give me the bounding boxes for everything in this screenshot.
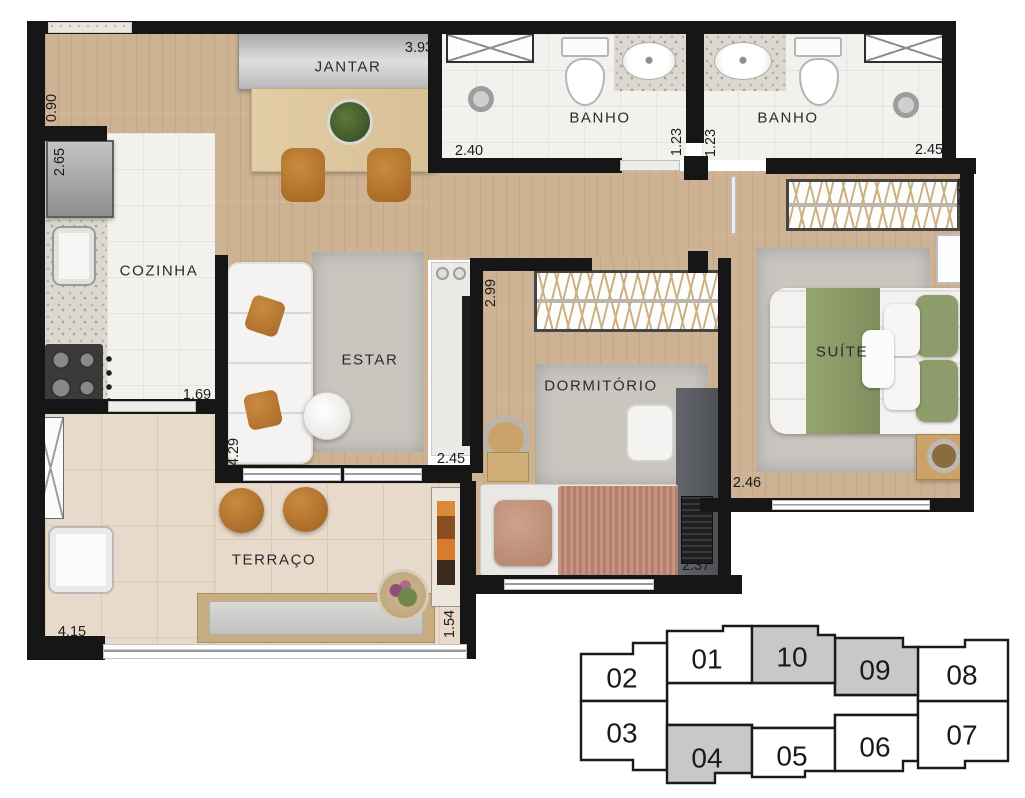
wall [470, 258, 592, 271]
coffee-table [303, 392, 351, 440]
dim-banho1-depth: 1.23 [669, 128, 685, 156]
wall [960, 158, 974, 512]
toilet-1-tank [561, 37, 609, 57]
shower-box-1 [446, 33, 534, 63]
stove-knobs [104, 352, 114, 404]
dorm-window [504, 579, 654, 590]
washing-machine [48, 526, 114, 594]
dim-terraco-width: 4.15 [58, 624, 86, 640]
wall [27, 21, 956, 34]
terrace-glass-railing [103, 644, 467, 659]
keyplan: 01020304050607080910 [573, 623, 1025, 795]
room-label-banho-1: BANHO [569, 110, 630, 127]
dim-banho2-depth: 1.23 [703, 129, 719, 157]
dim-entry-width: 0.90 [44, 94, 60, 122]
tv-screen [462, 296, 470, 446]
pouf-1 [219, 488, 264, 533]
estar-sliding-door-1 [243, 468, 341, 481]
nightstand-tray [927, 439, 961, 473]
basin-1 [622, 42, 676, 80]
room-label-dormitorio: DORMITÓRIO [544, 378, 658, 395]
room-label-banho-2: BANHO [757, 110, 818, 127]
suite-door-leaf [731, 176, 736, 234]
pouf-2 [283, 487, 328, 532]
keyplan-unit-label-09: 09 [859, 655, 890, 686]
keyplan-unit-label-07: 07 [946, 720, 977, 751]
dim-dormitorio-width: 2.37 [682, 558, 710, 574]
terrace-plant [380, 572, 426, 618]
stove [45, 344, 103, 404]
wall [460, 481, 476, 659]
keyplan-unit-label-06: 06 [859, 732, 890, 763]
room-label-estar: ESTAR [342, 352, 399, 369]
wall [718, 258, 731, 584]
dorm-blanket [558, 486, 678, 576]
dorm-bench [487, 452, 529, 482]
keyplan-unit-label-01: 01 [691, 644, 722, 675]
dim-banho2-width: 2.45 [915, 142, 943, 158]
suite-wardrobe [786, 179, 960, 231]
dorm-pillow [494, 500, 552, 566]
banho1-door [620, 160, 680, 171]
shower-box-2 [864, 33, 948, 63]
wall [686, 21, 704, 143]
keyplan-unit-label-04: 04 [691, 743, 722, 774]
shower-head-2 [893, 92, 919, 118]
wall [688, 251, 708, 273]
entry-door-sill [48, 22, 132, 33]
dim-estar-depth: 4.29 [226, 438, 242, 466]
desk-chair [626, 404, 674, 462]
dining-chair-1 [281, 148, 325, 202]
floor-plan-screenshot: JANTAR BANHO BANHO COZINHA ESTAR DORMITÓ… [0, 0, 1025, 798]
tv-console-knob-2 [453, 267, 466, 280]
dim-dormitorio-depth: 2.99 [483, 279, 499, 307]
wall [766, 158, 944, 174]
grill-fire [437, 501, 455, 585]
wall [470, 258, 483, 473]
suite-window [772, 500, 930, 510]
wall [428, 158, 622, 173]
dim-banho1-width: 2.40 [455, 143, 483, 159]
dim-estar-width: 2.45 [437, 451, 465, 467]
room-label-suite: SUÍTE [816, 344, 868, 361]
basin-2 [714, 42, 772, 80]
keyplan-unit-label-08: 08 [946, 660, 977, 691]
dim-terraco-depth: 1.54 [442, 610, 458, 638]
keyplan-unit-label-03: 03 [606, 718, 637, 749]
dim-jantar-width: 3.93 [405, 40, 433, 56]
tv-console-knob-1 [436, 267, 449, 280]
room-label-cozinha: COZINHA [120, 263, 199, 280]
dim-suite-depth: 3.17 [956, 178, 972, 206]
kitchen-sink [52, 226, 96, 286]
estar-sliding-door-2 [344, 468, 422, 481]
suite-pillow-green-1 [916, 295, 958, 357]
dim-suite-width: 2.46 [733, 475, 761, 491]
wall [27, 413, 45, 660]
sofa [227, 262, 313, 464]
wall [684, 156, 708, 180]
table-plant [330, 102, 370, 142]
dim-cozinha-depth: 2.65 [52, 148, 68, 176]
wall [942, 21, 956, 167]
shower-head-1 [468, 86, 494, 112]
sofa-pillow-2 [243, 389, 284, 431]
room-label-terraco: TERRAÇO [232, 552, 317, 569]
keyplan-unit-label-05: 05 [776, 741, 807, 772]
keyplan-unit-label-02: 02 [606, 663, 637, 694]
dorm-wardrobe [534, 270, 722, 332]
dining-chair-2 [367, 148, 411, 202]
keyplan-unit-label-10: 10 [776, 642, 807, 673]
dim-cozinha-width: 1.69 [183, 387, 211, 403]
wall [27, 133, 45, 414]
room-label-jantar: JANTAR [315, 59, 382, 76]
toilet-2-tank [794, 37, 842, 57]
suite-pillow-green-2 [916, 360, 958, 422]
wall [27, 21, 45, 141]
